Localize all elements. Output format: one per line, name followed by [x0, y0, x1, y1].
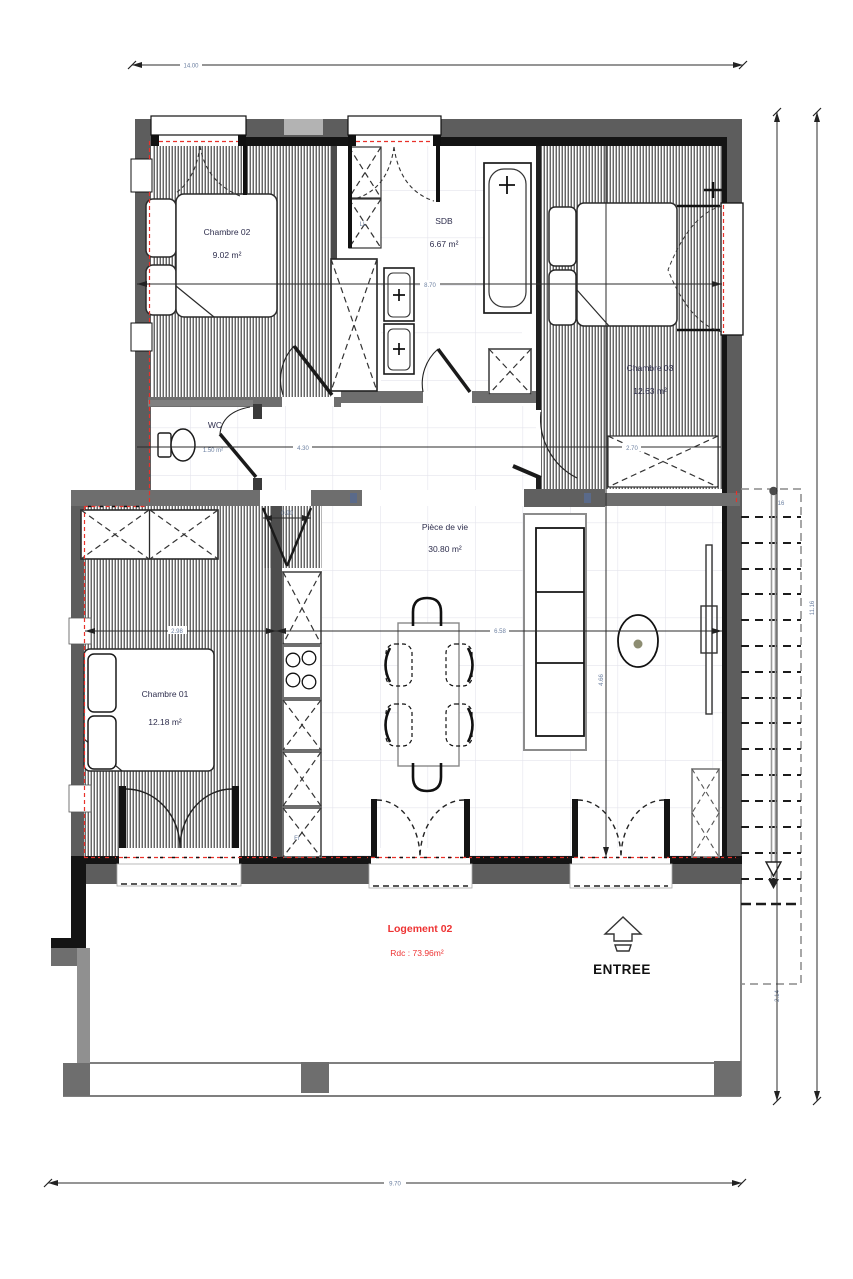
- svg-text:6.58: 6.58: [494, 629, 506, 635]
- svg-text:1.50 m²: 1.50 m²: [203, 448, 223, 454]
- svg-text:9.70: 9.70: [389, 1182, 401, 1188]
- svg-text:2.70: 2.70: [626, 446, 638, 452]
- svg-text:Rdc : 73.96m²: Rdc : 73.96m²: [390, 948, 444, 958]
- svg-text:6.67 m²: 6.67 m²: [430, 239, 459, 249]
- svg-text:12.18 m²: 12.18 m²: [148, 717, 182, 727]
- svg-text:Fr: Fr: [294, 836, 300, 842]
- svg-text:11.16: 11.16: [810, 600, 816, 615]
- svg-text:Chambre 02: Chambre 02: [204, 227, 251, 237]
- svg-text:2.98: 2.98: [171, 629, 183, 635]
- svg-text:4.66: 4.66: [599, 674, 605, 686]
- svg-text:SDB: SDB: [435, 216, 453, 226]
- svg-text:14.00: 14.00: [183, 64, 199, 70]
- svg-text:ENTREE: ENTREE: [593, 962, 651, 977]
- svg-text:WC: WC: [208, 420, 222, 430]
- svg-text:12.63 m²: 12.63 m²: [633, 386, 667, 396]
- svg-text:16: 16: [778, 501, 785, 507]
- svg-text:Pièce de vie: Pièce de vie: [422, 522, 469, 532]
- svg-text:8.70: 8.70: [424, 283, 436, 289]
- svg-text:Logement 02: Logement 02: [388, 923, 453, 935]
- svg-text:Chambre 01: Chambre 01: [142, 689, 189, 699]
- svg-text:4.30: 4.30: [297, 446, 309, 452]
- svg-text:9.02 m²: 9.02 m²: [213, 250, 242, 260]
- svg-text:2.14: 2.14: [775, 990, 781, 1002]
- svg-text:30.80 m²: 30.80 m²: [428, 544, 462, 554]
- svg-text:Chambre 03: Chambre 03: [627, 363, 674, 373]
- svg-text:0.90: 0.90: [281, 511, 293, 517]
- svg-text:LL: LL: [360, 222, 367, 228]
